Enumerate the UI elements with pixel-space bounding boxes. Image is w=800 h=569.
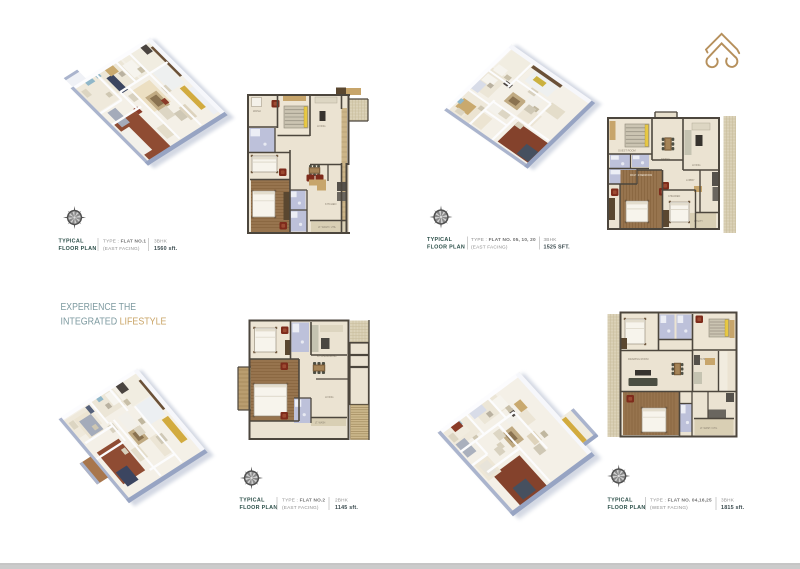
svg-text:(EAST FACING): (EAST FACING) bbox=[103, 246, 140, 251]
svg-text:3BHK: 3BHK bbox=[721, 498, 735, 503]
svg-text:WASH: WASH bbox=[253, 109, 261, 113]
svg-text:TYPE : FLAT NO.1: TYPE : FLAT NO.1 bbox=[103, 239, 146, 244]
svg-text:(WEST FACING): (WEST FACING) bbox=[650, 505, 688, 510]
svg-text:TYPE : FLAT NO. 05, 10, 20: TYPE : FLAT NO. 05, 10, 20 bbox=[471, 237, 536, 242]
svg-text:FLOOR PLAN: FLOOR PLAN bbox=[59, 246, 97, 252]
svg-text:3BHK: 3BHK bbox=[154, 239, 168, 244]
svg-text:TYPICAL: TYPICAL bbox=[608, 498, 634, 504]
svg-text:FLOOR PLAN: FLOOR PLAN bbox=[608, 505, 646, 511]
svg-text:1815 sft.: 1815 sft. bbox=[721, 505, 745, 511]
svg-text:FLOOR PLAN: FLOOR PLAN bbox=[427, 244, 465, 250]
svg-text:1525 SFT.: 1525 SFT. bbox=[544, 244, 571, 250]
svg-text:(EAST FACING): (EAST FACING) bbox=[471, 244, 508, 249]
svg-text:TYPICAL: TYPICAL bbox=[427, 237, 453, 243]
svg-text:(EAST FACING): (EAST FACING) bbox=[282, 505, 319, 510]
svg-text:INTEGRATED LIFESTYLE: INTEGRATED LIFESTYLE bbox=[61, 317, 167, 328]
svg-text:LIVING: LIVING bbox=[325, 395, 334, 399]
svg-text:LT. WASH / UTIL: LT. WASH / UTIL bbox=[700, 427, 718, 430]
svg-text:1560 sft.: 1560 sft. bbox=[154, 246, 178, 252]
svg-text:FLOOR PLAN: FLOOR PLAN bbox=[240, 505, 278, 511]
svg-text:GUEST ROOM: GUEST ROOM bbox=[618, 149, 636, 153]
svg-text:LIVING: LIVING bbox=[692, 163, 701, 167]
svg-text:CHILDREN: CHILDREN bbox=[668, 195, 680, 198]
svg-text:EXPERIENCE THE: EXPERIENCE THE bbox=[61, 302, 137, 313]
svg-text:LOBBY: LOBBY bbox=[686, 178, 695, 182]
svg-text:MASTER BEDROOM: MASTER BEDROOM bbox=[630, 174, 652, 177]
svg-text:3BHK: 3BHK bbox=[544, 237, 558, 242]
svg-text:1145 sft.: 1145 sft. bbox=[335, 505, 358, 511]
svg-text:2BHK: 2BHK bbox=[335, 498, 349, 503]
svg-text:TYPICAL: TYPICAL bbox=[240, 498, 266, 504]
svg-text:KITCHEN: KITCHEN bbox=[325, 202, 337, 206]
svg-text:LT. WASH / UTIL: LT. WASH / UTIL bbox=[318, 226, 337, 229]
svg-text:TYPE : FLAT NO.2: TYPE : FLAT NO.2 bbox=[282, 498, 325, 503]
svg-text:DRAWING ROOM: DRAWING ROOM bbox=[628, 358, 648, 361]
svg-text:LIVING: LIVING bbox=[317, 124, 326, 128]
svg-text:TYPE : FLAT NO. 04,16,25: TYPE : FLAT NO. 04,16,25 bbox=[650, 498, 712, 503]
svg-text:LT. WASH: LT. WASH bbox=[315, 422, 326, 425]
svg-text:TYPICAL: TYPICAL bbox=[59, 239, 85, 245]
